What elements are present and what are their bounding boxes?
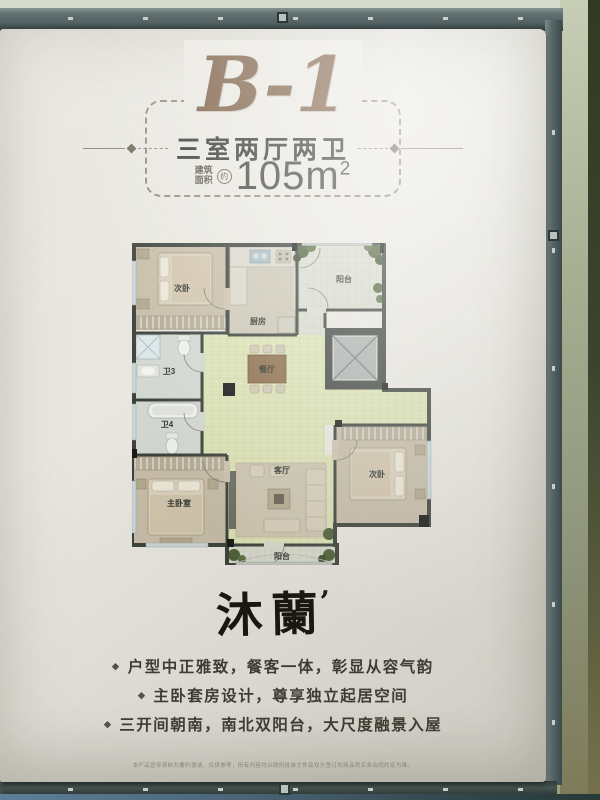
- corridor-floor: [325, 388, 429, 425]
- decor-line-left: [83, 148, 125, 149]
- label-master: 主卧室: [167, 498, 191, 508]
- label-balcony-top: 阳台: [336, 274, 352, 284]
- frame-clip-bottom: [279, 783, 290, 795]
- approx-circle: 约: [217, 169, 232, 184]
- label-bath4: 卫4: [161, 420, 174, 429]
- floorplan-poster: B-1 三室两厅两卫 建筑 面积 约 105m2: [0, 29, 546, 782]
- brand-mark: ’: [319, 585, 330, 620]
- feature-text: 三开间朝南，南北双阳台，大尺度融景入屋: [119, 713, 442, 735]
- feature-text: 主卧套房设计，尊享独立起居空间: [153, 684, 408, 706]
- area-row: 建筑 面积 约 105m2: [0, 156, 546, 196]
- diamond-marker-left: [127, 143, 137, 153]
- background-wall: [560, 0, 588, 800]
- frame-clip-top: [277, 12, 288, 23]
- feature-list: ◆ 户型中正雅致，餐客一体，彰显从容气韵 ◆ 主卧套房设计，尊享独立起居空间 ◆…: [0, 655, 546, 735]
- label-bedroom2: 次卧: [174, 283, 190, 293]
- diamond-bullet-icon: ◆: [112, 660, 120, 671]
- area-prefix-bottom: 面积: [195, 176, 213, 186]
- disclaimer-text: 本产品宣传资料为要约邀请，仅供参考，所有内容均以政府批准文件及双方签订的商品房买…: [27, 760, 518, 768]
- floor-plan: 次卧 厨房 阳台 卫3 卫4 餐厅 主卧室 客厅 次卧 阳台: [132, 243, 432, 565]
- feature-item: ◆ 户型中正雅致，餐客一体，彰显从容气韵: [112, 655, 433, 677]
- label-dining: 餐厅: [258, 364, 275, 374]
- area-value: 105m2: [236, 156, 352, 196]
- unit-title: B-1: [0, 47, 546, 123]
- background-wall-edge: [588, 0, 600, 800]
- label-bath3: 卫3: [163, 367, 176, 376]
- decor-line-right: [401, 148, 463, 149]
- elevator-shaft: [325, 328, 385, 388]
- diamond-bullet-icon: ◆: [138, 689, 146, 700]
- brand-logo: 沐蘭’: [0, 571, 547, 650]
- feature-item: ◆ 三开间朝南，南北双阳台，大尺度融景入屋: [104, 713, 442, 735]
- label-kitchen: 厨房: [250, 316, 266, 326]
- dining-floor: [202, 335, 325, 455]
- area-prefix: 建筑 面积: [195, 166, 213, 186]
- wardrobe-bedroom2: [135, 316, 226, 329]
- label-living: 客厅: [273, 465, 290, 475]
- label-balcony-bottom: 阳台: [274, 551, 290, 561]
- feature-text: 户型中正雅致，餐客一体，彰显从容气韵: [128, 655, 434, 677]
- floor-strip: [0, 794, 600, 800]
- diamond-marker-right: [390, 143, 400, 153]
- label-bedroom3: 次卧: [369, 469, 385, 479]
- decor-dash-left: [138, 148, 168, 149]
- wardrobe-bedroom3: [342, 427, 427, 440]
- feature-item: ◆ 主卧套房设计，尊享独立起居空间: [138, 684, 408, 706]
- wardrobe-master: [134, 457, 225, 470]
- diamond-bullet-icon: ◆: [104, 718, 112, 729]
- decor-dash-right: [358, 148, 388, 149]
- frame-clip-right: [548, 230, 559, 241]
- frame-rail-right: [545, 20, 562, 785]
- photo-of-poster: B-1 三室两厅两卫 建筑 面积 约 105m2: [0, 0, 600, 800]
